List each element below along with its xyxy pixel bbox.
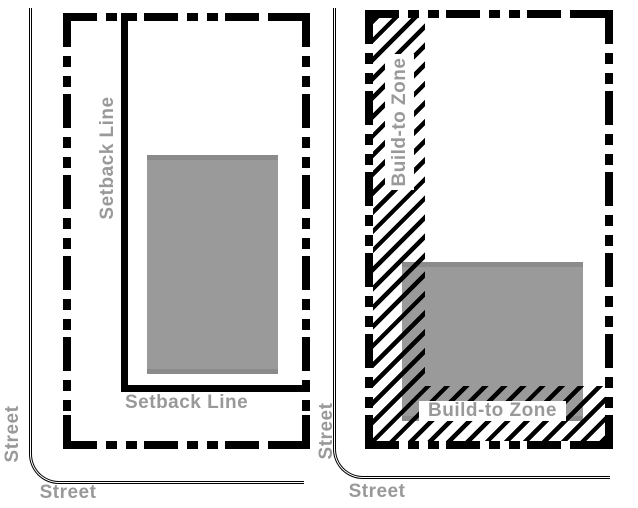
build-to-zone-label-horizontal: Build-to Zone bbox=[420, 399, 565, 423]
lot-boundary-west-left-diagram bbox=[63, 13, 71, 449]
lot-boundary-east-right-diagram bbox=[605, 10, 613, 449]
setback-line-label-horizontal: Setback Line bbox=[125, 391, 247, 415]
lot-corner-icon bbox=[63, 415, 97, 449]
lot-corner-icon bbox=[63, 13, 97, 47]
street-label-vertical-left: Street bbox=[1, 394, 25, 474]
setback-line-label-vertical: Setback Line bbox=[96, 83, 120, 233]
lot-boundary-top-right-diagram bbox=[365, 10, 613, 18]
street-label-horizontal-left: Street bbox=[36, 481, 100, 505]
lot-corner-icon bbox=[276, 415, 310, 449]
lot-boundary-bottom-right-diagram bbox=[365, 441, 613, 449]
street-label-horizontal-right: Street bbox=[345, 480, 409, 504]
lot-boundary-bottom-left-diagram bbox=[63, 441, 310, 449]
lot-corner-icon bbox=[579, 10, 613, 44]
zoning-comparison-diagram: Setback Line Setback Line Street Street … bbox=[0, 0, 638, 508]
building-footprint-left bbox=[147, 155, 278, 374]
build-to-zone-label-vertical: Build-to Zone bbox=[388, 47, 412, 197]
lot-boundary-west-right-diagram bbox=[365, 10, 373, 449]
street-label-vertical-right: Street bbox=[315, 391, 339, 471]
